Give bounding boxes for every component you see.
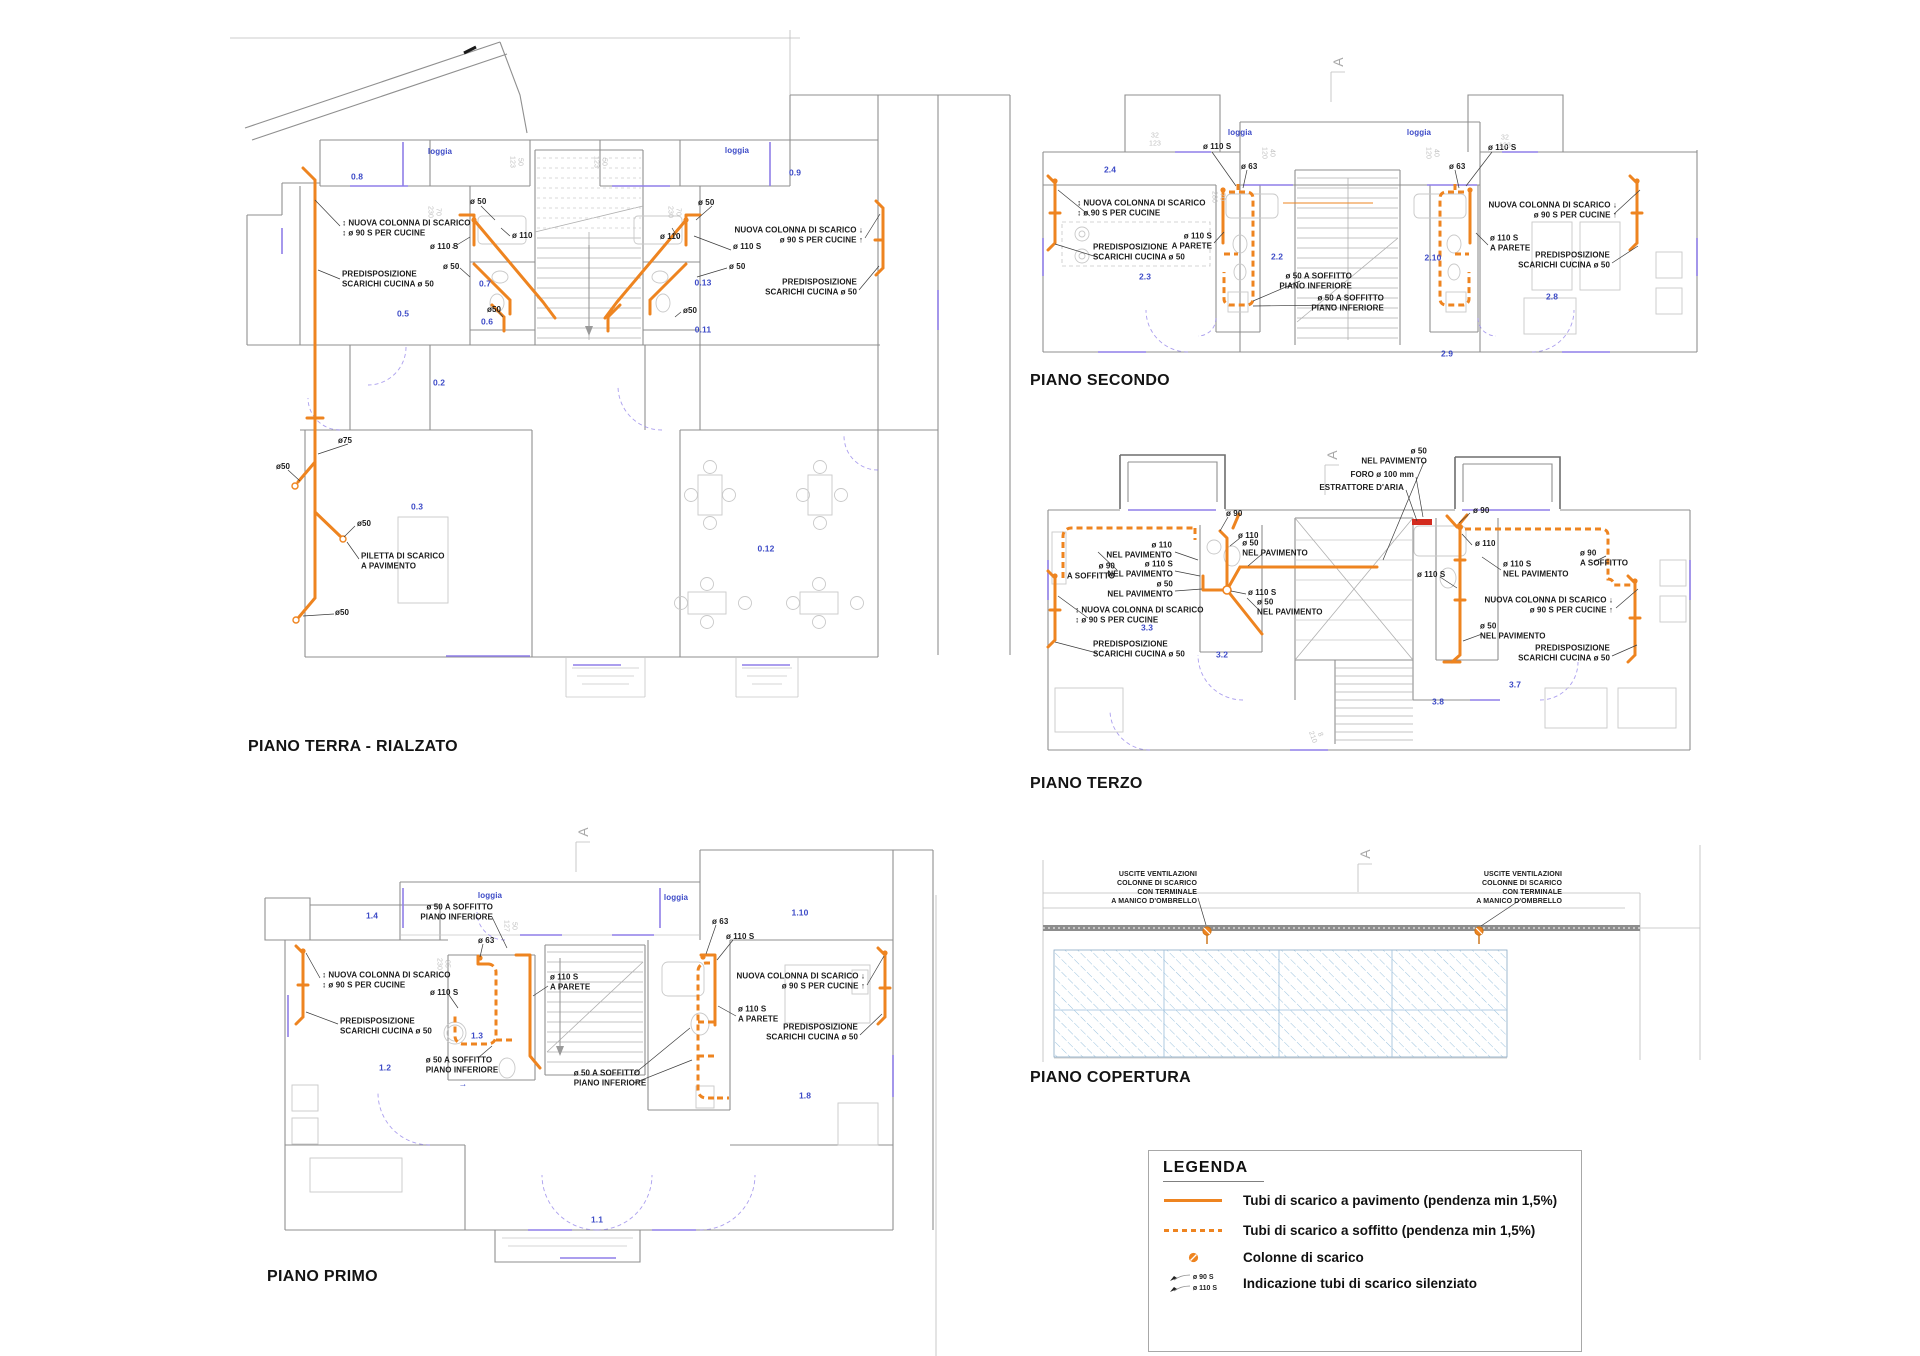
pipes-floor [298, 168, 883, 617]
furniture [1075, 194, 1682, 334]
legend-box: LEGENDA Tubi di scarico a pavimento (pen… [1148, 1150, 1582, 1352]
title-piano-terzo: PIANO TERZO [1030, 775, 1143, 793]
legend-row-floor-pipes: Tubi di scarico a pavimento (pendenza mi… [1161, 1193, 1557, 1208]
title-piano-primo: PIANO PRIMO [267, 1268, 378, 1286]
leader-arrow-icon [1169, 1284, 1191, 1293]
pipes-ceiling [1063, 528, 1633, 585]
drainage-plan-sheet: 0.80.50.70.60.20.30.90.130.110.12loggial… [0, 0, 1920, 1356]
legend-label: Indicazione tubi di scarico silenziato [1243, 1276, 1477, 1291]
drain-column-dots [300, 948, 887, 960]
piano-secondo-drawing [1043, 72, 1697, 352]
furniture [1052, 526, 1686, 732]
leader-arrow-icon [1169, 1273, 1191, 1282]
legend-label: Tubi di scarico a pavimento (pendenza mi… [1243, 1193, 1557, 1208]
silenced-pipe-arrows-icon: ø 90 S ø 110 S [1169, 1273, 1217, 1293]
legend-row-drain-columns: Colonne di scarico [1161, 1250, 1364, 1265]
drain-column-dots [1052, 524, 1637, 594]
solid-pipe-line-icon [1164, 1199, 1222, 1202]
diameter-90s-label: ø 90 S [1193, 1274, 1214, 1281]
pipes-floor [1048, 176, 1642, 250]
piano-terzo-drawing [1048, 455, 1690, 750]
legend-row-ceiling-pipes: Tubi di scarico a soffitto (pendenza min… [1161, 1223, 1535, 1238]
roof-hatch-area [1054, 950, 1507, 1057]
piano-primo-drawing [265, 842, 933, 1262]
title-piano-terra: PIANO TERRA - RIALZATO [248, 738, 458, 756]
legend-title: LEGENDA [1163, 1159, 1264, 1182]
pipes-ceiling [455, 963, 729, 1098]
piano-terra-drawing [230, 30, 1010, 697]
floor-plans-drawing [0, 0, 1920, 1356]
diameter-110s-label: ø 110 S [1193, 1285, 1217, 1292]
roof-ridge-band [1043, 925, 1640, 931]
piano-copertura-drawing [1043, 845, 1700, 1062]
title-piano-secondo: PIANO SECONDO [1030, 372, 1170, 390]
drain-column-dot-icon [1187, 1251, 1200, 1264]
legend-label: Tubi di scarico a soffitto (pendenza min… [1243, 1223, 1535, 1238]
pipes-floor [296, 946, 890, 1068]
legend-label: Colonne di scarico [1243, 1250, 1364, 1265]
dashed-pipe-line-icon [1164, 1229, 1222, 1232]
pipes-ceiling [1224, 182, 1469, 305]
title-piano-copertura: PIANO COPERTURA [1030, 1069, 1191, 1087]
extractor-hole [1412, 519, 1432, 525]
legend-row-silenced-pipes: ø 90 S ø 110 S Indicazione tubi di scari… [1161, 1273, 1477, 1293]
furniture [292, 962, 878, 1192]
